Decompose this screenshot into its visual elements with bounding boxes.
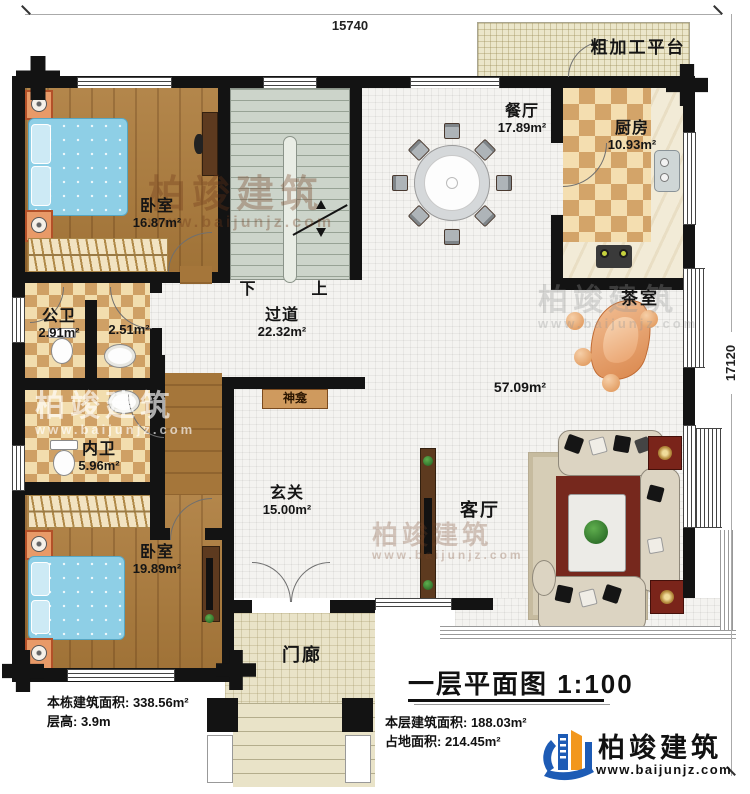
sink-basin-icon [660, 173, 669, 182]
porch-column [207, 698, 238, 732]
room-label-bedroom-bottom: 卧室 19.89m² [120, 542, 194, 578]
dining-chair [444, 123, 460, 139]
sofa-arm [532, 560, 556, 596]
terrace-railing [720, 530, 736, 630]
title-underline [408, 699, 604, 702]
floor-plan: 神龛 柏竣建 [0, 0, 750, 794]
room-name: 玄关 [270, 485, 304, 503]
kitchen-sink [654, 150, 680, 192]
stairs-down-label: 下 [236, 280, 260, 300]
shrine-label: 神龛 [283, 392, 307, 405]
window [683, 425, 696, 528]
wall [228, 600, 252, 613]
window [683, 132, 696, 225]
room-label-tea: 茶室 [616, 288, 664, 310]
dimension-right-value: 17120 [723, 332, 739, 394]
wall [212, 272, 230, 283]
wall [683, 528, 695, 598]
room-label-dining: 餐厅 17.89m² [490, 100, 554, 138]
room-label-vanity: 2.51m² [100, 322, 158, 338]
dining-chair [444, 229, 460, 245]
wall [683, 368, 695, 425]
room-label-kitchen: 厨房 10.93m² [594, 118, 670, 154]
tv [206, 558, 213, 610]
wall [350, 88, 362, 280]
title-underline-thin [414, 704, 610, 705]
wall [452, 598, 493, 610]
room-name: 卧室 [140, 544, 174, 562]
wall [25, 482, 160, 495]
porch-pilaster [345, 735, 371, 783]
dimension-line-right [731, 14, 732, 776]
stat-floor-area: 本层建筑面积: 188.03m² [385, 712, 527, 731]
plant-icon [423, 456, 433, 466]
room-label-living: 客厅 [456, 498, 504, 522]
room-area: 5.96m² [78, 459, 119, 474]
shrine-box: 神龛 [262, 389, 328, 409]
stat-floor-height: 层高: 3.9m [47, 711, 111, 730]
tea-stool [566, 312, 584, 330]
logo-svg [538, 726, 598, 784]
tea-stool [602, 374, 620, 392]
window [683, 268, 705, 368]
plant-icon [423, 580, 433, 590]
room-name: 过道 [265, 307, 299, 325]
pillow [31, 124, 51, 164]
wall [25, 378, 160, 390]
pillow [31, 562, 50, 596]
room-area: 10.93m² [608, 138, 656, 153]
wall [330, 600, 375, 613]
porch-pilaster [207, 735, 233, 783]
room-label-public-bath: 公卫 2.91m² [28, 306, 90, 342]
room-area: 16.87m² [133, 216, 181, 231]
window [67, 669, 175, 681]
room-area: 2.51m² [108, 323, 149, 338]
area-name: 粗加工平台 [591, 38, 686, 57]
window [12, 297, 25, 343]
room-name: 公卫 [42, 308, 76, 326]
stat-footprint: 占地面积: 214.45m² [385, 731, 501, 750]
plan-title: 一层平面图 1:100 [408, 664, 634, 701]
company-website: www.baijunjz.com [596, 762, 732, 777]
pillow [31, 600, 50, 634]
burner-icon [600, 249, 609, 258]
wardrobe [28, 238, 168, 272]
open-area-label: 57.09m² [482, 379, 558, 397]
cushion [555, 585, 574, 604]
wall [150, 528, 170, 540]
room-name: 客厅 [460, 500, 500, 520]
stairs-up-text: 上 [311, 281, 328, 299]
lamp-icon [31, 217, 47, 233]
lamp-icon [31, 536, 47, 552]
window [77, 77, 172, 88]
wall [222, 377, 365, 389]
tv [424, 498, 432, 554]
wall [683, 225, 695, 268]
lazy-susan [446, 177, 458, 189]
pillow [31, 166, 51, 206]
room-area: 17.89m² [498, 121, 546, 136]
terrace-railing [440, 626, 736, 640]
company-logo-icon [538, 726, 598, 784]
dining-chair [496, 175, 512, 191]
window [375, 598, 452, 610]
sink [104, 344, 136, 368]
porch-label: 门廊 [274, 642, 330, 668]
window [12, 445, 25, 491]
plant-icon [205, 614, 214, 623]
tea-stool [574, 348, 592, 366]
tea-stool [640, 310, 658, 328]
room-area: 2.91m² [38, 326, 79, 341]
room-label-bedroom-top: 卧室 16.87m² [120, 196, 194, 232]
plant-icon [584, 520, 608, 544]
room-name: 卧室 [140, 198, 174, 216]
window [410, 77, 500, 88]
stair-arrow-up-icon [316, 200, 326, 209]
bay-window [696, 428, 722, 528]
cushion [613, 435, 632, 454]
burner-icon [619, 249, 628, 258]
dimension-line-top [25, 14, 722, 15]
room-area: 15.00m² [263, 503, 311, 518]
wall [12, 76, 25, 682]
desk [202, 112, 218, 176]
window [263, 77, 317, 88]
porch-column [342, 698, 373, 732]
room-label-ensuite: 内卫 5.96m² [64, 440, 134, 474]
room-name: 餐厅 [505, 103, 539, 121]
sink-basin-icon [660, 158, 669, 167]
area-name: 门廊 [282, 645, 322, 665]
room-label-foyer: 玄关 15.00m² [250, 482, 324, 520]
room-area: 19.89m² [133, 562, 181, 577]
room-name: 厨房 [615, 120, 649, 138]
desk-chair [194, 134, 203, 154]
emblem-icon [658, 446, 672, 460]
emblem-icon [660, 590, 674, 604]
lamp-icon [31, 645, 47, 661]
dimension-top-value: 15740 [315, 18, 385, 34]
room-name: 茶室 [621, 289, 659, 308]
wall [12, 272, 180, 283]
dining-chair [392, 175, 408, 191]
wall [218, 88, 230, 272]
cushion [647, 537, 664, 554]
platform-label: 粗加工平台 [586, 36, 690, 60]
stair-rail [283, 136, 297, 283]
room-area: 57.09m² [494, 380, 546, 396]
company-name: 柏竣建筑 [598, 726, 722, 765]
wardrobe [28, 495, 160, 528]
room-label-corridor: 过道 22.32m² [246, 304, 318, 342]
room-area: 22.32m² [258, 325, 306, 340]
room-name: 内卫 [82, 441, 116, 459]
stairs-down-text: 下 [239, 281, 256, 299]
stat-building-area: 本栋建筑面积: 338.56m² [47, 692, 189, 711]
wall [222, 377, 234, 668]
stair-arrow-down-icon [316, 228, 326, 237]
stairs-up-label: 上 [308, 280, 332, 300]
